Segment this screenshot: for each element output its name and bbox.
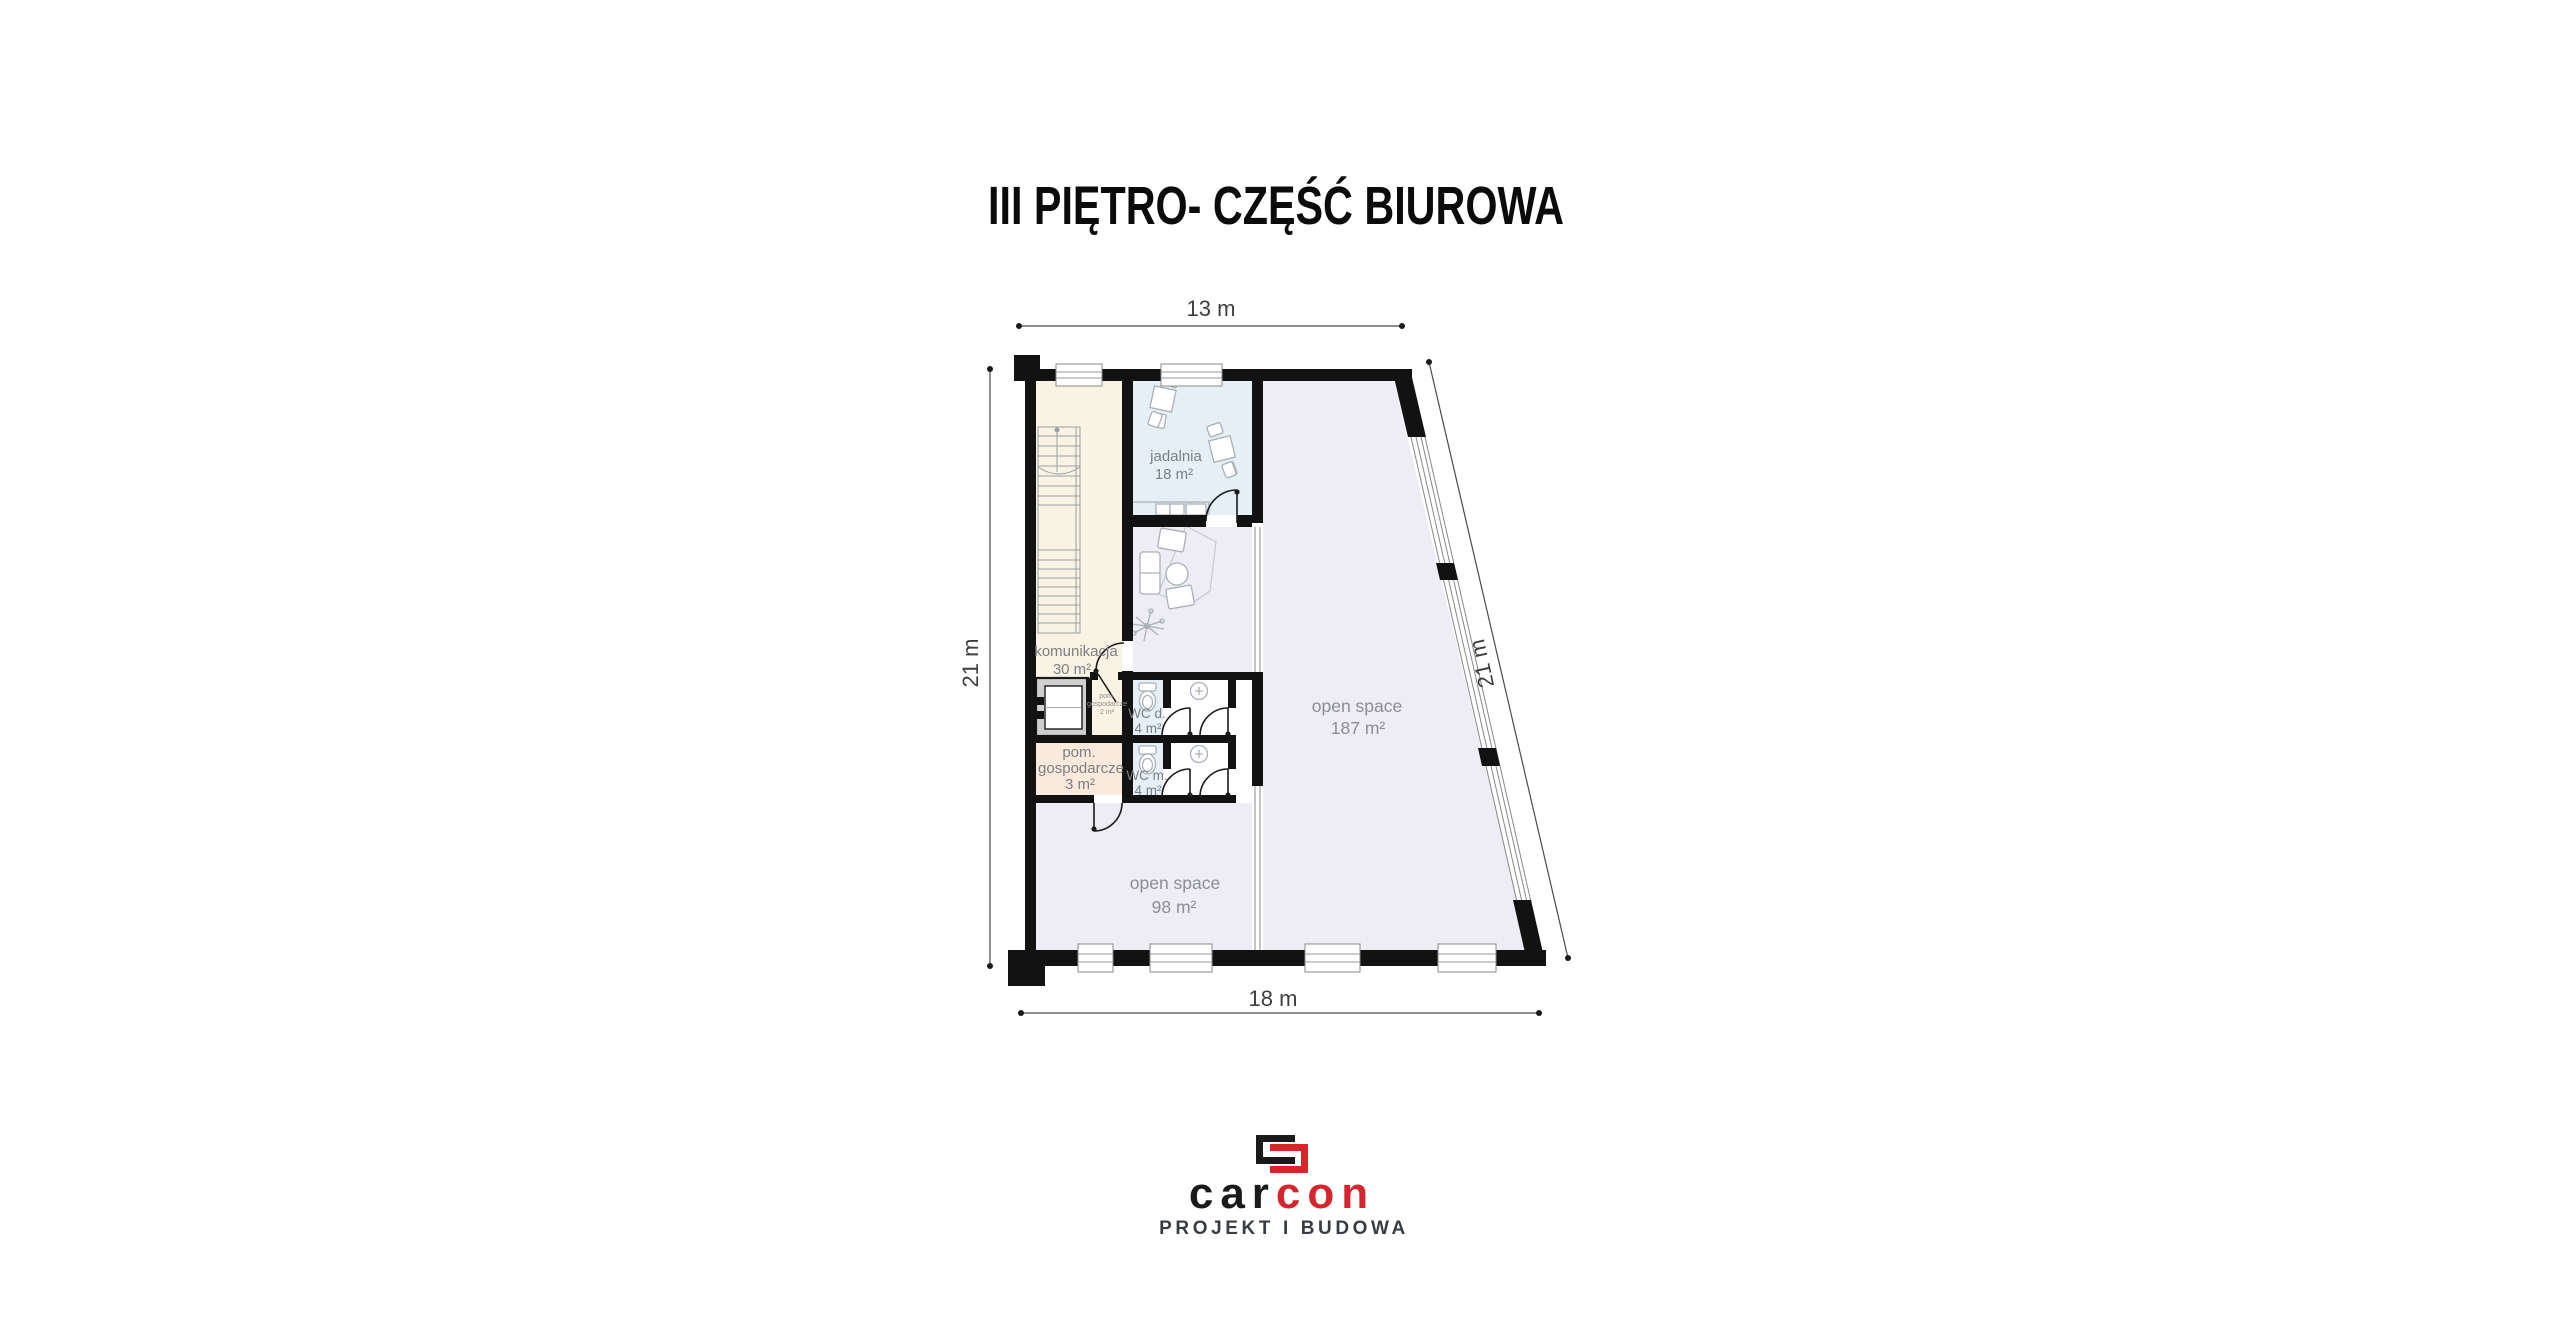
door-lobby-1 xyxy=(1200,708,1231,737)
svg-text:2 m²: 2 m² xyxy=(1100,709,1115,716)
elevator xyxy=(1036,678,1088,736)
door-lobby-2 xyxy=(1200,769,1231,798)
label-wc-m-name: WC m. xyxy=(1126,768,1167,783)
dimension-left-label: 21 m xyxy=(958,639,983,688)
logo-wordmark-red: con xyxy=(1276,1169,1375,1218)
svg-text:pom.: pom. xyxy=(1099,693,1115,700)
company-logo: carcon PROJEKT I BUDOWA xyxy=(1159,1135,1409,1239)
dimension-top-label: 13 m xyxy=(1187,296,1236,321)
wall-corner-bottom-left xyxy=(1008,950,1045,986)
elevator-door-mark xyxy=(1037,697,1044,705)
label-komunikacja-name: komunikacja xyxy=(1034,643,1118,660)
label-jadalnia-name: jadalnia xyxy=(1149,448,1202,465)
page-title: III PIĘTRO- CZĘŚĆ BIUROWA xyxy=(988,176,1564,236)
dimension-top: 13 m xyxy=(1016,296,1405,329)
wall-corner-top-left xyxy=(1014,355,1040,381)
elevator-door-mark xyxy=(1037,711,1044,719)
label-jadalnia-area: 18 m² xyxy=(1155,466,1193,483)
window-bottom-2 xyxy=(1150,944,1212,972)
svg-text:pom.: pom. xyxy=(1062,744,1095,761)
svg-text:3 m²: 3 m² xyxy=(1065,776,1095,793)
window-bottom-4 xyxy=(1438,944,1496,972)
label-open-space-98-area: 98 m² xyxy=(1152,897,1197,917)
floorplan-canvas: III PIĘTRO- CZĘŚĆ BIUROWA xyxy=(0,0,2560,1335)
window-top-2 xyxy=(1161,364,1222,386)
logo-wordmark-black: car xyxy=(1189,1169,1276,1218)
label-open-space-187-area: 187 m² xyxy=(1331,718,1386,738)
sink-icon-1 xyxy=(1191,683,1208,700)
logo-emblem-icon xyxy=(1256,1135,1308,1173)
svg-text:gospodarcze: gospodarcze xyxy=(1087,701,1127,708)
label-open-space-98-name: open space xyxy=(1130,873,1221,893)
window-top-1 xyxy=(1056,364,1102,386)
window-bottom-1 xyxy=(1078,944,1113,972)
svg-text:gospodarcze: gospodarcze xyxy=(1038,760,1124,777)
label-komunikacja-area: 30 m² xyxy=(1053,661,1091,678)
label-open-space-187-name: open space xyxy=(1312,696,1403,716)
floor-plan: 13 m 21 m 21 m 18 m komunikacja 30 m² ja… xyxy=(958,296,1571,1016)
dimension-right-label: 21 m xyxy=(1464,637,1499,690)
dimension-bottom: 18 m xyxy=(1018,986,1542,1016)
sink-icon-2 xyxy=(1191,746,1208,763)
label-wc-m-area: 4 m² xyxy=(1135,783,1163,798)
door-wc-d xyxy=(1162,708,1193,737)
window-bottom-3 xyxy=(1305,944,1360,972)
logo-tagline: PROJEKT I BUDOWA xyxy=(1159,1218,1409,1239)
dimension-left: 21 m xyxy=(958,366,993,969)
wall-left xyxy=(1025,369,1036,966)
label-wc-d-name: WC d. xyxy=(1128,706,1166,721)
dimension-bottom-label: 18 m xyxy=(1249,986,1298,1011)
label-wc-d-area: 4 m² xyxy=(1135,721,1163,736)
logo-wordmark: carcon xyxy=(1189,1169,1375,1218)
